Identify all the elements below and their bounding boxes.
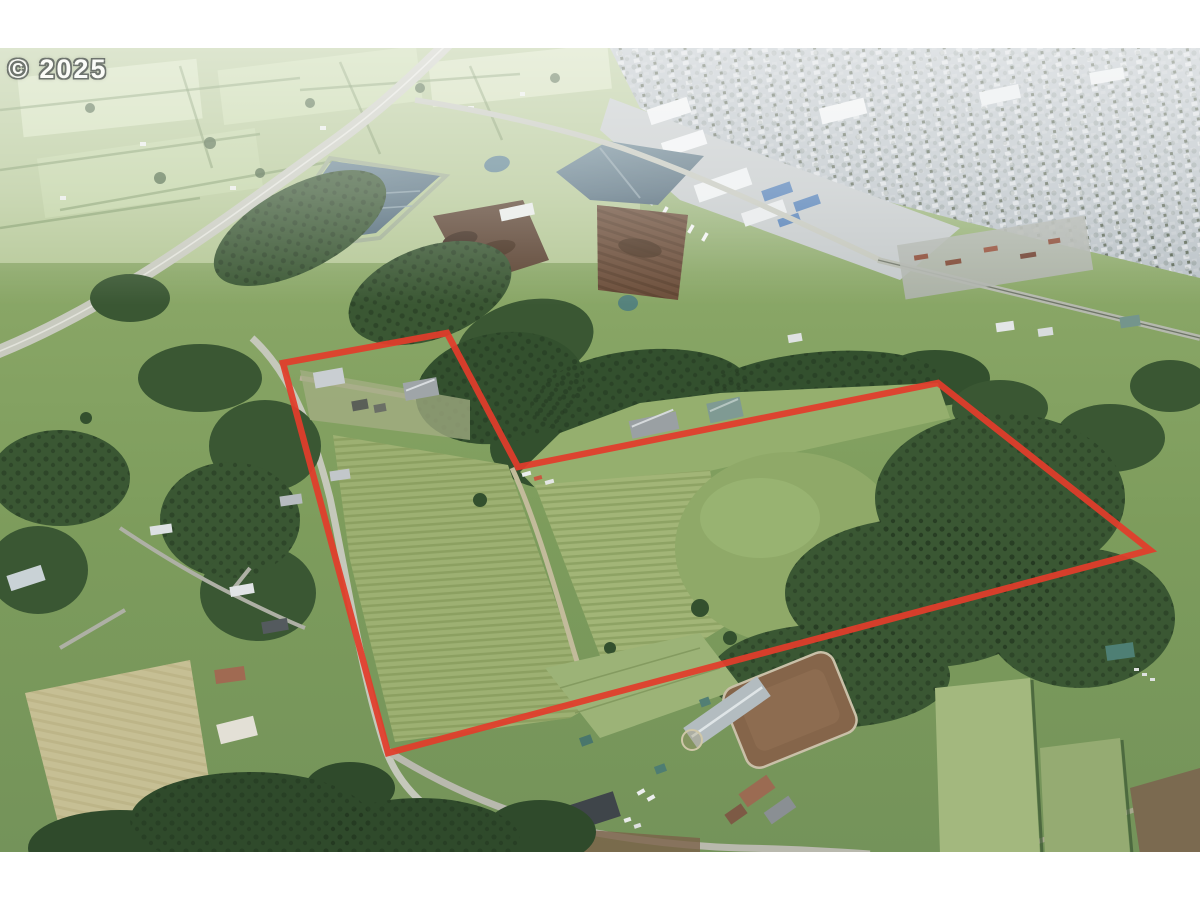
aerial-photo: © 2025: [0, 48, 1200, 852]
aerial-scene: [0, 48, 1200, 852]
copyright-watermark: © 2025: [8, 54, 107, 85]
screenshot-canvas: © 2025: [0, 0, 1200, 900]
